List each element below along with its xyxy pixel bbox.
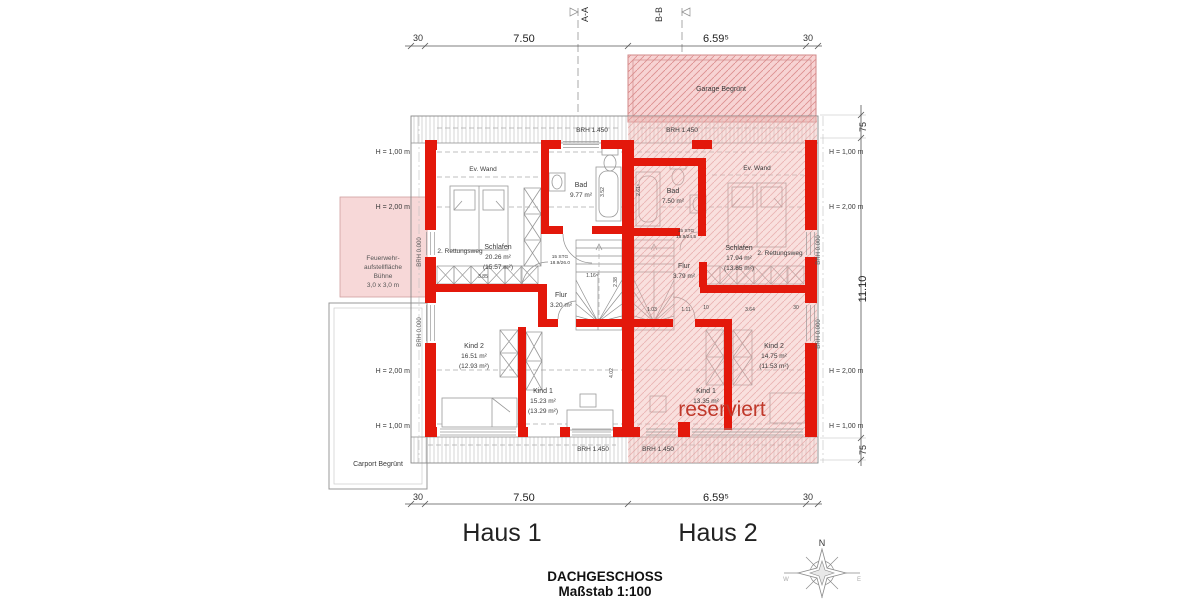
h-label-left-2: H = 2,00 m (376, 204, 411, 211)
brh-top-haus1: BRH 1.450 (576, 127, 608, 134)
scale-label: Maßstab 1:100 (558, 584, 651, 599)
rettungsweg-haus1: 2. Rettungsweg (437, 248, 483, 255)
room-kind1-haus1-area2: (13.29 m²) (528, 408, 558, 415)
stairs-haus1-dim: 18.9/26.0 (550, 260, 570, 266)
room-schlafen-haus2-area: 17.94 m² (726, 255, 752, 262)
dim-103: 1.03 (647, 307, 657, 313)
room-bad-haus1: Bad (575, 182, 588, 189)
dim-bottom-750: 7.50 (513, 492, 534, 504)
room-schlafen-haus1-area: 20.26 m² (485, 254, 511, 261)
dim-30-small: 30 (793, 305, 799, 311)
dim-385: 3.85 (478, 274, 488, 280)
floor-title: DACHGESCHOSS (547, 569, 663, 584)
dim-top-659: 6.59⁵ (703, 33, 729, 45)
h-label-right-1: H = 1,00 m (829, 149, 864, 156)
dim-10: 10 (703, 305, 709, 311)
stairs-haus2-stg: 15 STG (678, 228, 695, 234)
dim-111: 1.11 (681, 307, 691, 313)
dim-bottom-30-right: 30 (803, 492, 813, 502)
dim-top-30-right: 30 (803, 33, 813, 43)
section-a-label: A-A (580, 7, 590, 22)
brh0-left-1: BRH 0.000 (417, 237, 423, 267)
dim-bottom-659: 6.59⁵ (703, 492, 729, 504)
room-flur-haus1-area: 3.20 m² (550, 302, 573, 309)
compass-east-label: E (857, 577, 861, 583)
room-kind2-haus2-area: 14.75 m² (761, 353, 787, 360)
feuerwehr-label-2: aufstellfläche (364, 264, 402, 271)
dim-238: 2.38 (613, 277, 619, 287)
bed-kind2-haus1 (442, 398, 517, 427)
haus1-label: Haus 1 (462, 519, 541, 547)
brh0-right-1: BRH 0.000 (816, 235, 822, 265)
room-bad-haus2-area: 7.50 m² (662, 198, 685, 205)
room-kind2-haus1: Kind 2 (464, 343, 484, 350)
rettungsweg-haus2: 2. Rettungsweg (757, 250, 803, 257)
room-kind1-haus2: Kind 1 (696, 388, 716, 395)
room-kind2-haus2: Kind 2 (764, 343, 784, 350)
dim-right-75-bottom: 75 (858, 445, 868, 455)
dim-right-1110: 11.10 (857, 276, 869, 303)
dim-bottom-30-left: 30 (413, 492, 423, 502)
dim-right-75-top: 75 (858, 122, 868, 132)
dim-116: 1.16⁵ (586, 273, 598, 279)
h-label-left-4: H = 1,00 m (376, 423, 411, 430)
reserved-stamp: reserviert (678, 398, 766, 421)
room-flur-haus1: Flur (555, 292, 568, 299)
room-schlafen-haus1-area2: (15.57 m²) (483, 264, 513, 271)
h-label-left-1: H = 1,00 m (376, 149, 411, 156)
h-label-right-2: H = 2,00 m (829, 204, 864, 211)
brh0-right-2: BRH 0.000 (816, 319, 822, 349)
dim-top-750: 7.50 (513, 33, 534, 45)
evwand-haus1: Ev. Wand (469, 166, 497, 173)
room-bad-haus2: Bad (667, 188, 680, 195)
room-kind1-haus1-area: 15.23 m² (530, 398, 556, 405)
evwand-haus2: Ev. Wand (743, 165, 771, 172)
h-label-right-3: H = 2,00 m (829, 368, 864, 375)
feuerwehr-label-4: 3,0 x 3,0 m (367, 282, 399, 289)
haus2-label: Haus 2 (678, 519, 757, 547)
bed-schlafen-haus1 (450, 186, 508, 250)
room-schlafen-haus2: Schlafen (725, 245, 752, 252)
room-kind1-haus1: Kind 1 (533, 388, 553, 395)
brh-bottom-haus2: BRH 1.450 (642, 446, 674, 453)
canvas-background (0, 0, 1200, 600)
room-bad-haus1-area: 9.77 m² (570, 192, 593, 199)
room-flur-haus2: Flur (678, 263, 691, 270)
brh-top-haus2: BRH 1.450 (666, 127, 698, 134)
dim-top-30-left: 30 (413, 33, 423, 43)
section-b-label: B-B (654, 7, 664, 22)
feuerwehr-label-1: Feuerwehr- (366, 255, 399, 262)
brh0-left-2: BRH 0.000 (417, 317, 423, 347)
h-label-right-4: H = 1,00 m (829, 423, 864, 430)
garage-label: Garage Begrünt (696, 86, 746, 93)
compass-north-label: N (819, 538, 826, 548)
brh-bottom-haus1: BRH 1.450 (577, 446, 609, 453)
room-kind2-haus1-area2: (12.93 m²) (459, 363, 489, 370)
stairs-haus2-dim: 18.9/24.5 (676, 234, 696, 240)
room-schlafen-haus1: Schlafen (484, 244, 511, 251)
compass-west-label: W (783, 577, 789, 583)
carport-label: Carport Begrünt (353, 461, 403, 468)
h-label-left-3: H = 2,00 m (376, 368, 411, 375)
room-kind2-haus2-area2: (11.53 m²) (759, 363, 789, 370)
room-kind2-haus1-area: 16.51 m² (461, 353, 487, 360)
room-schlafen-haus2-area2: (13.85 m²) (724, 265, 754, 272)
dim-402: 4.02 (609, 368, 615, 378)
dim-261: 2.61⁵ (636, 184, 642, 196)
stairs-haus1-stg: 15 STG (552, 254, 569, 260)
feuerwehr-label-3: Bühne (374, 273, 393, 280)
dim-352: 3.52 (600, 187, 606, 197)
room-flur-haus2-area: 3.79 m² (673, 273, 696, 280)
dim-364: 3.64 (745, 307, 755, 313)
floor-plan-svg: A-A B-B 30 7.50 6.59⁵ 30 Garage Begrünt … (0, 0, 1200, 600)
